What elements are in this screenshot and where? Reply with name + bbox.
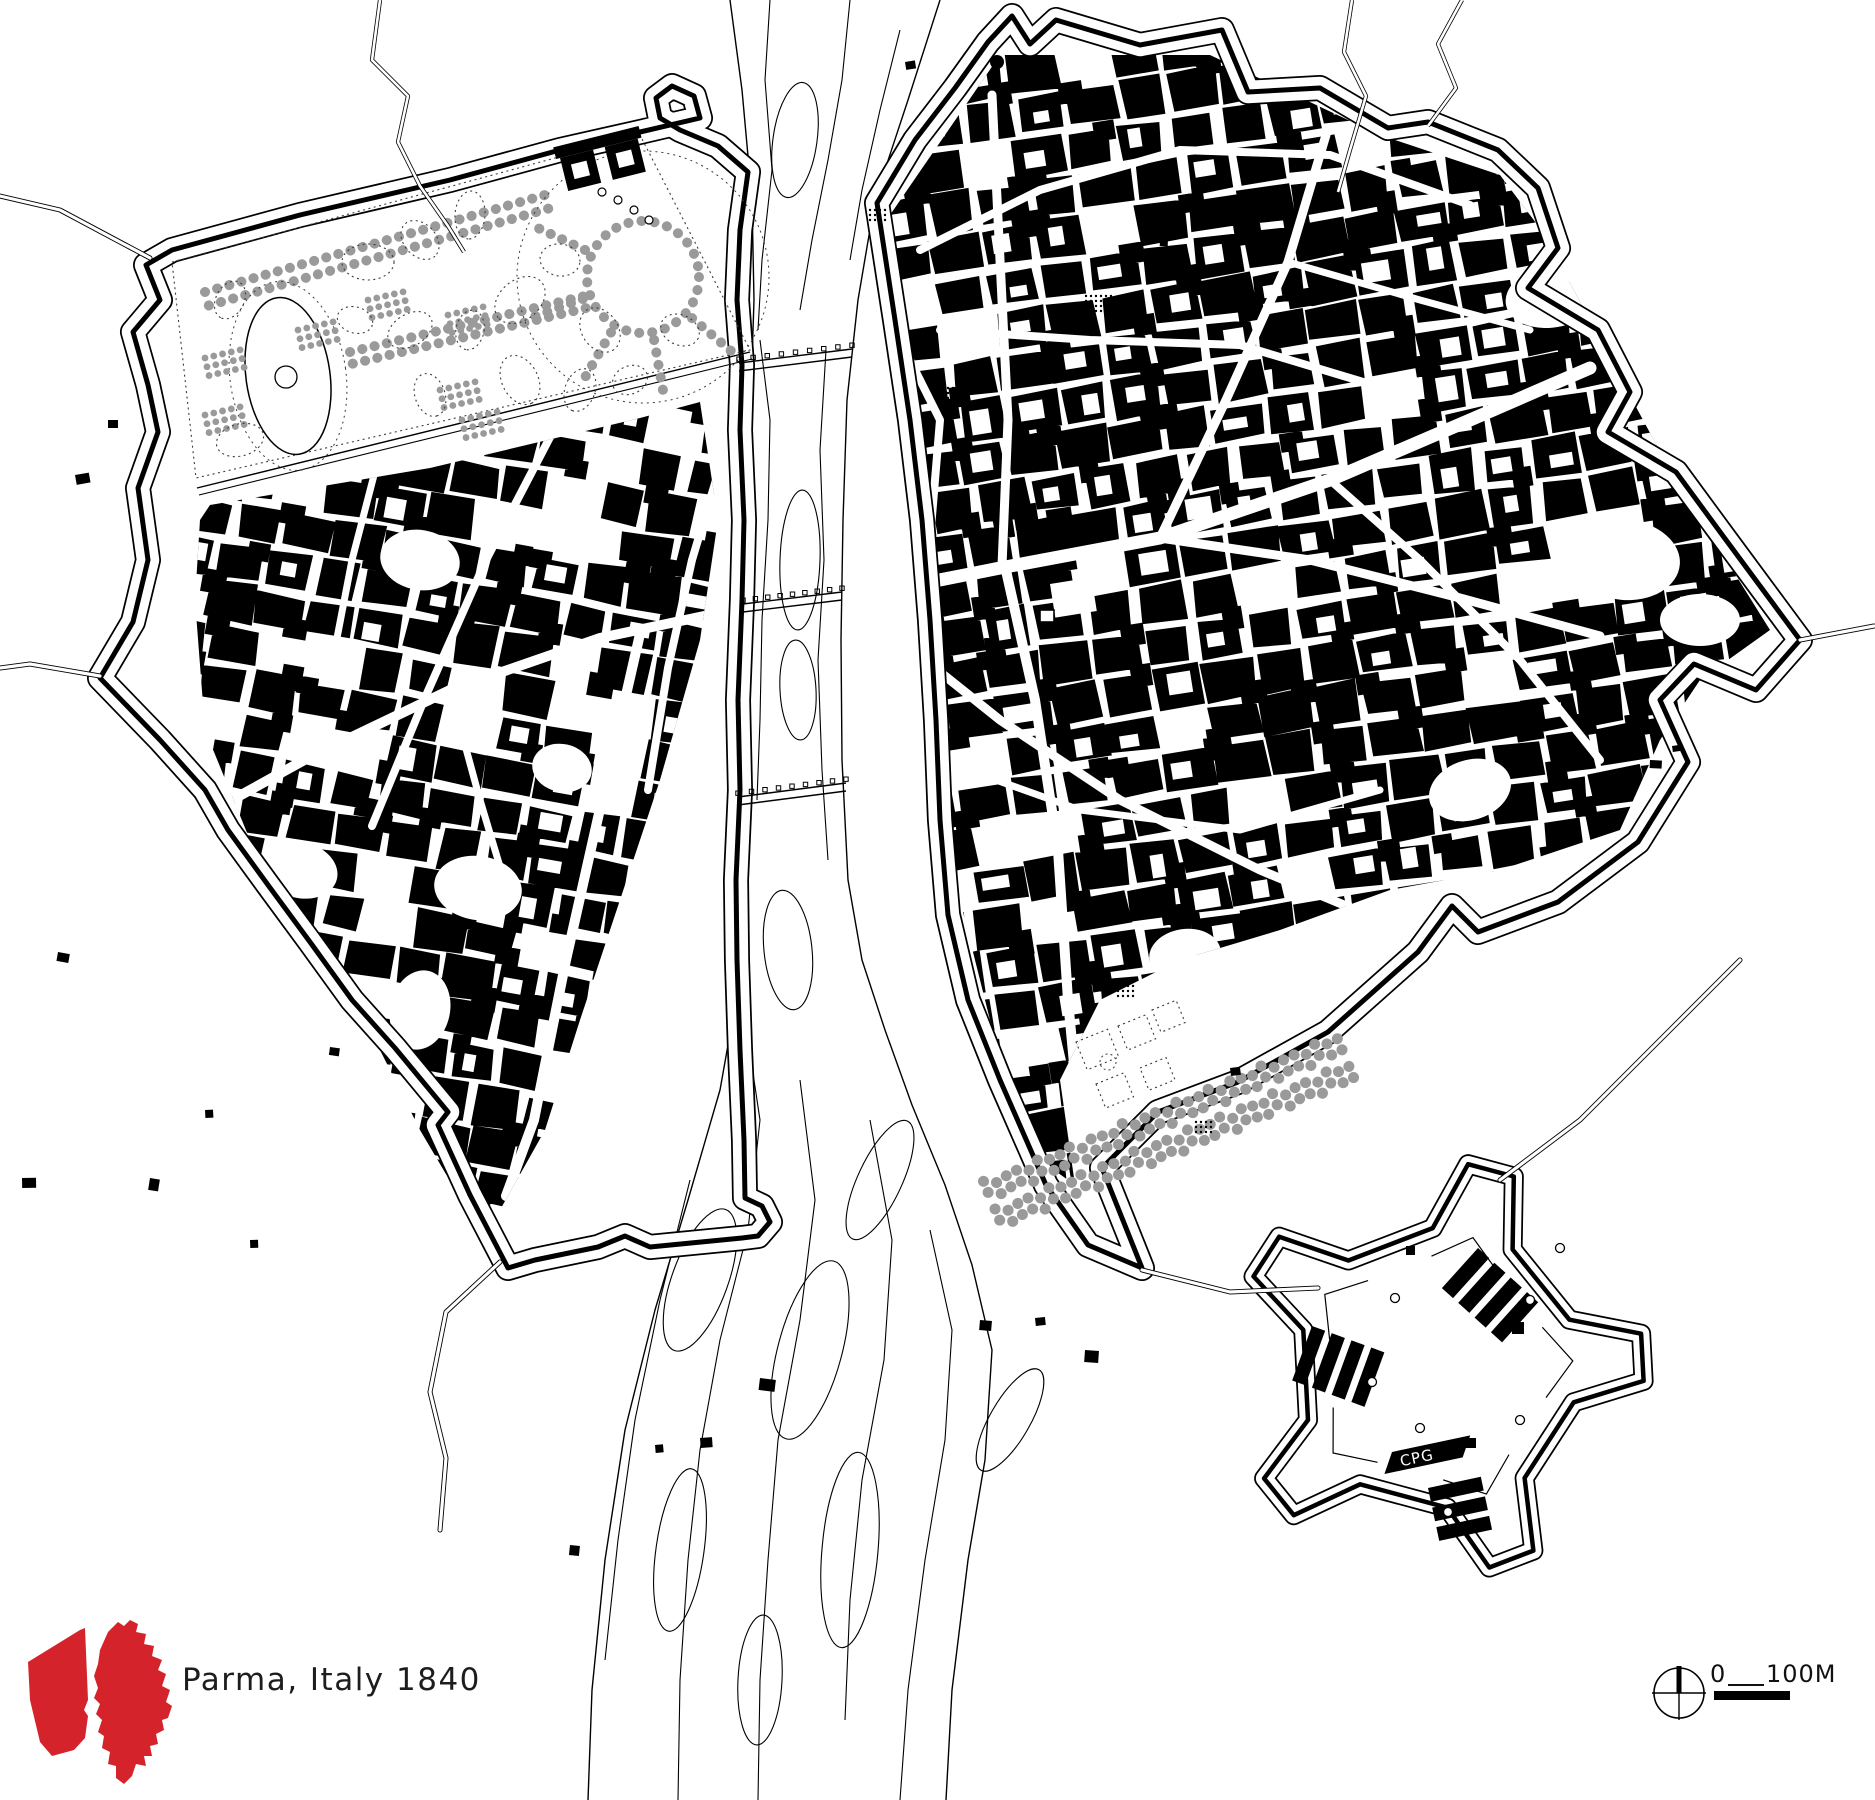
scale-indicator: 0 100M bbox=[1650, 1658, 1870, 1728]
point-marker bbox=[990, 55, 1004, 69]
farmstead-block bbox=[250, 1240, 258, 1248]
city-silhouette-logo bbox=[24, 1612, 174, 1790]
logo-east-bank-shape bbox=[94, 1620, 172, 1784]
farmstead-block bbox=[569, 1545, 580, 1556]
farmstead-block bbox=[1084, 1350, 1099, 1363]
citadel-star-fort: CPG bbox=[1254, 1164, 1644, 1567]
parma-figure-ground-map: CPG bbox=[0, 0, 1875, 1800]
district-east-bank bbox=[398, 0, 1875, 1555]
map-sheet: CPG Parma, Italy 1840 0 100M bbox=[0, 0, 1875, 1800]
farmstead-block bbox=[108, 420, 118, 428]
central-piazza bbox=[1050, 577, 1097, 617]
farmstead-block bbox=[1160, 238, 1168, 246]
scale-bar bbox=[1714, 1691, 1790, 1700]
farmstead-block bbox=[1230, 1067, 1241, 1076]
garden-pond bbox=[235, 292, 340, 460]
farmstead-block bbox=[22, 1178, 36, 1188]
farmstead-block bbox=[979, 1320, 992, 1331]
farmstead-block bbox=[205, 1110, 213, 1118]
ducal-garden bbox=[172, 126, 769, 495]
farmstead-block bbox=[329, 1047, 340, 1056]
farmstead-block bbox=[905, 60, 916, 69]
farmstead-block bbox=[1035, 1317, 1046, 1326]
legend bbox=[24, 1612, 174, 1790]
scale-tick-line bbox=[1728, 1684, 1764, 1686]
farmstead-block bbox=[1650, 760, 1662, 769]
farmstead-block bbox=[56, 952, 69, 963]
farmstead-block bbox=[700, 1437, 713, 1448]
compass-icon bbox=[1650, 1664, 1708, 1722]
farmstead-block bbox=[655, 1444, 664, 1453]
farmstead-block bbox=[75, 473, 91, 485]
farmstead-block bbox=[759, 1378, 776, 1392]
logo-west-bank-shape bbox=[28, 1628, 88, 1756]
farmstead-block bbox=[1672, 745, 1681, 752]
farmstead-block bbox=[148, 1178, 160, 1191]
map-title: Parma, Italy 1840 bbox=[182, 1662, 481, 1698]
scale-distance-label: 100M bbox=[1766, 1660, 1837, 1688]
scale-zero-label: 0 bbox=[1710, 1660, 1725, 1688]
